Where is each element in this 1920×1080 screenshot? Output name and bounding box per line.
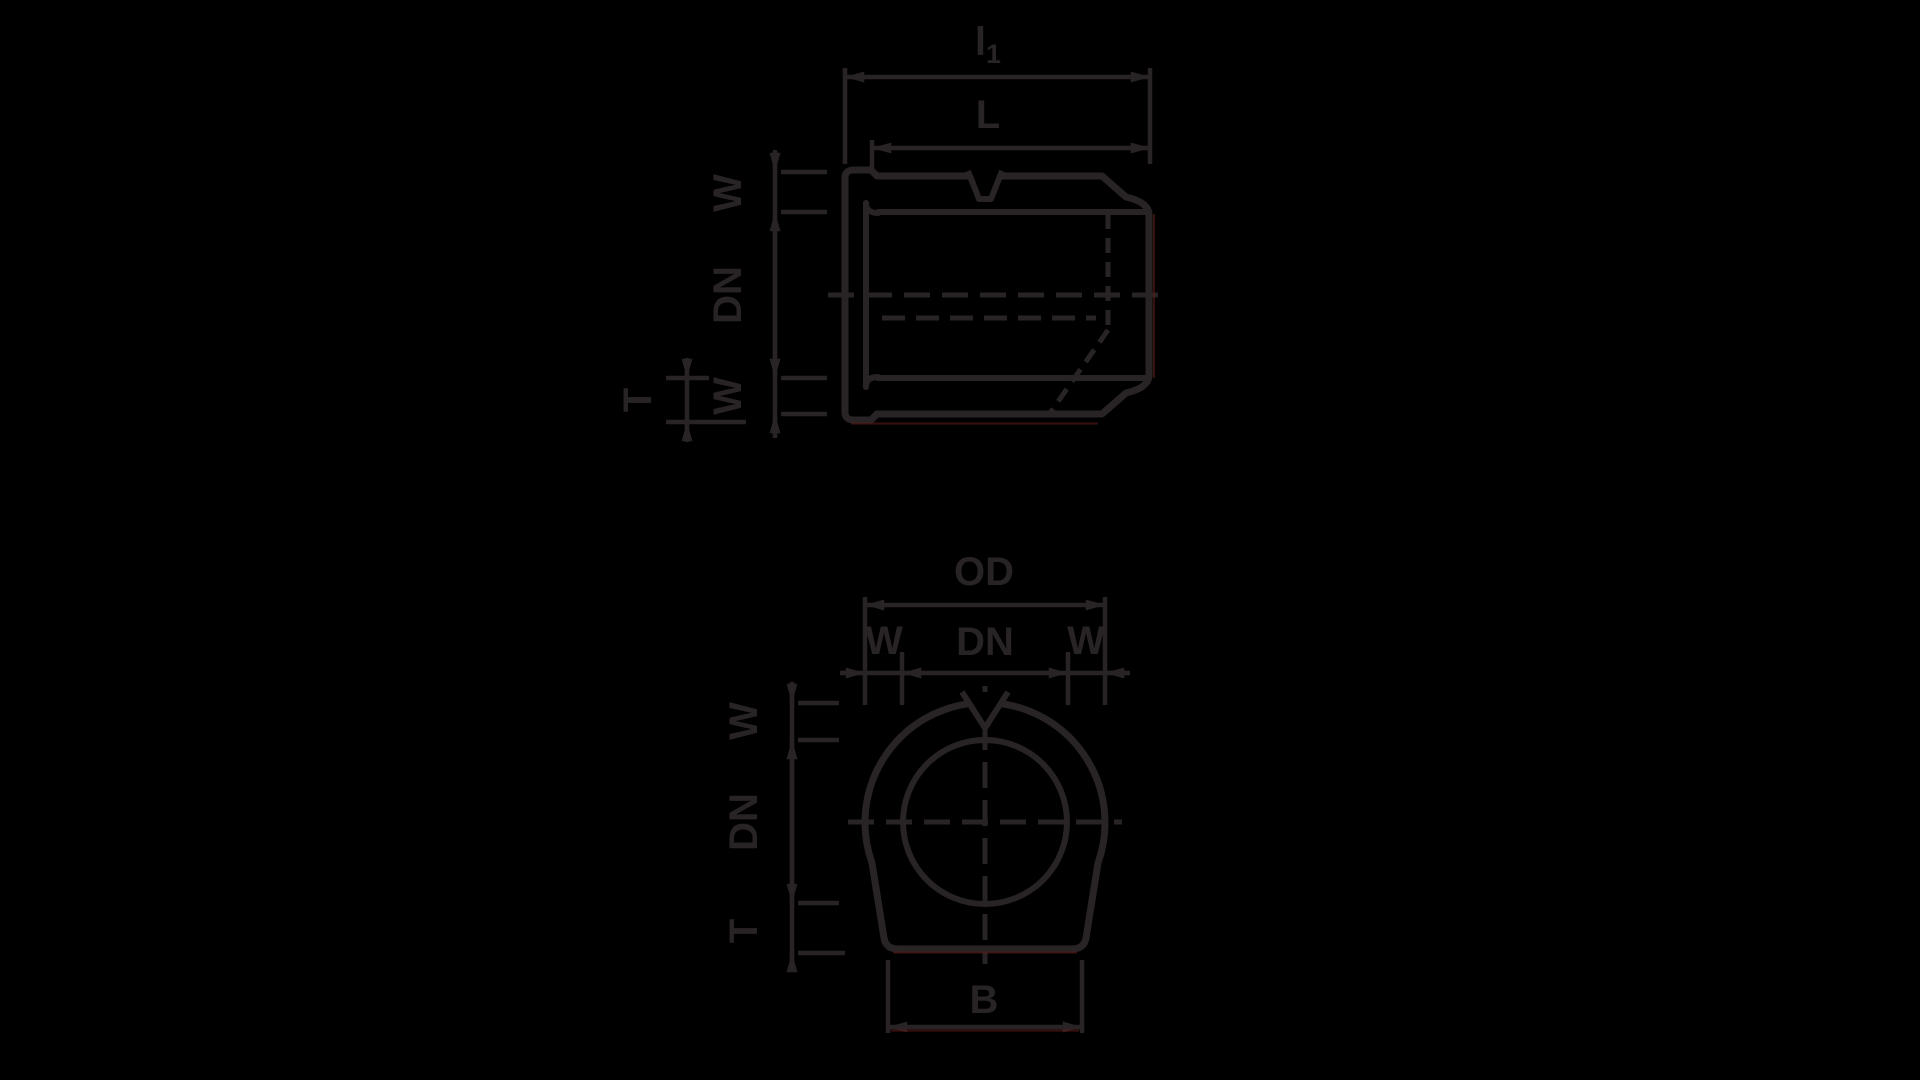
front-T-label: T [722,919,766,943]
L-label: L [976,93,1000,137]
W-bottom-label: W [706,377,750,415]
T-label: T [616,388,660,412]
dimension-l1: l1 [845,20,1150,164]
front-dimension-column-left: W DN T [722,682,845,972]
OD-label: OD [954,550,1014,594]
B-label: B [970,978,999,1022]
technical-drawing: l1 L W DN W T [0,0,1920,1080]
hidden-spigot-end [882,214,1108,416]
dimension-L: L [872,93,1150,172]
W-top-label: W [706,174,750,212]
hidden-spigot-chamfer [1048,330,1108,416]
l1-label: l1 [975,20,1001,69]
dimension-B: B [888,960,1082,1033]
front-DN-label: DN [722,793,766,851]
side-section-view: l1 L W DN W T [616,20,1170,442]
front-W-label: W [722,702,766,740]
top-notch [968,171,1002,199]
front-view: OD W DN W W DN T [722,550,1130,1033]
front-top-notch [962,692,1008,728]
dimension-column-left: W DN W [706,150,827,438]
W-right-label: W [1067,619,1105,663]
drawing-canvas: l1 L W DN W T [0,0,1920,1080]
W-left-label: W [865,619,903,663]
DN-top-label: DN [956,620,1014,664]
DN-label: DN [706,266,750,324]
